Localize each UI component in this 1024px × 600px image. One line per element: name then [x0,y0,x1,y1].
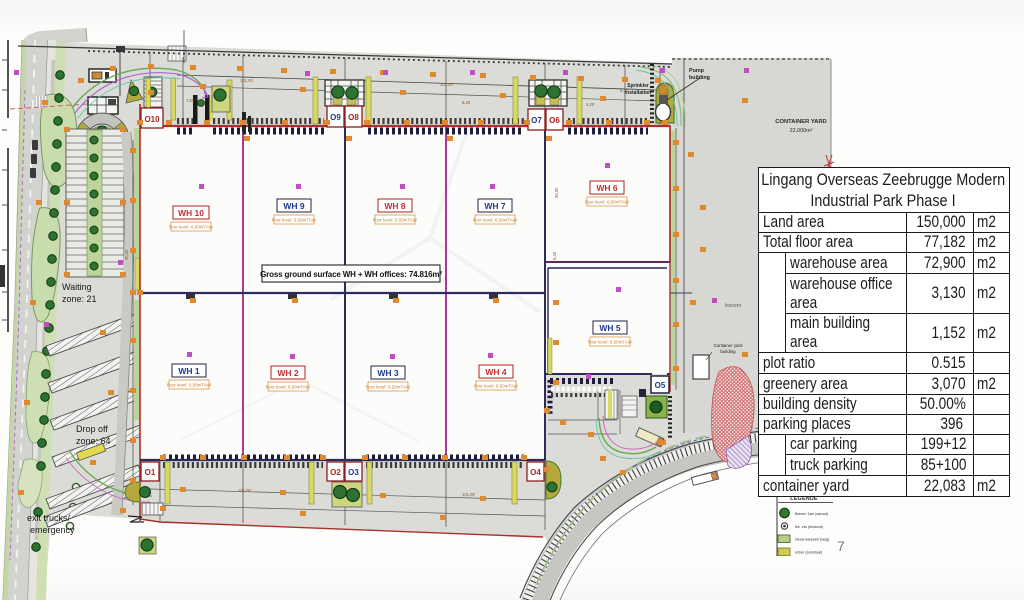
svg-text:WH 2: WH 2 [277,368,299,378]
svg-text:O2: O2 [330,468,341,477]
svg-text:6,40: 6,40 [552,251,557,260]
svg-text:O9: O9 [330,113,341,122]
svg-text:O4: O4 [530,468,541,477]
svg-text:WH 6: WH 6 [596,183,618,193]
svg-text:7,50: 7,50 [186,98,195,103]
svg-text:loricero: loricero [725,303,742,309]
svg-text:Bomen 1ste (aanzet): Bomen 1ste (aanzet) [795,512,828,516]
svg-text:Container yard: Container yard [714,343,743,348]
svg-text:exit trucks/: exit trucks/ [27,513,71,523]
svg-text:101,00: 101,00 [238,488,251,493]
svg-text:installation: installation [625,90,651,96]
svg-text:O7: O7 [531,116,542,125]
svg-text:emergency: emergency [30,525,75,535]
svg-text:building: building [720,349,736,354]
svg-text:Waiting: Waiting [62,282,92,292]
svg-text:WH 10: WH 10 [178,208,204,218]
svg-text:O10: O10 [144,115,160,124]
svg-text:WH 8: WH 8 [384,201,406,211]
svg-text:7: 7 [837,538,845,554]
svg-text:Drop off: Drop off [76,424,108,434]
svg-text:101,00: 101,00 [462,492,475,497]
svg-text:floor level: 6,50mTAW: floor level: 6,50mTAW [473,218,518,223]
svg-text:floor level: 6,50mTAW: floor level: 6,50mTAW [373,218,418,223]
svg-text:36,00: 36,00 [124,249,129,260]
svg-text:4,20: 4,20 [586,102,595,107]
svg-text:tek. vlw (bestond): tek. vlw (bestond) [795,525,823,529]
svg-text:WH 3: WH 3 [377,368,399,378]
svg-text:O3: O3 [348,468,359,477]
svg-text:floor level: 6,50mTAW: floor level: 6,50mTAW [169,225,214,230]
svg-text:floor level: 6,50mTAW: floor level: 6,50mTAW [585,200,630,205]
svg-text:6,20: 6,20 [620,88,629,93]
svg-text:CONTAINER YARD: CONTAINER YARD [775,119,826,125]
svg-text:6,20: 6,20 [462,100,471,105]
svg-text:floor level: 6,50mTAW: floor level: 6,50mTAW [366,385,411,390]
svg-text:Sprinkler: Sprinkler [627,83,649,89]
svg-text:Gross ground surface WH + WH o: Gross ground surface WH + WH offices: 74… [260,270,442,279]
svg-text:101,00: 101,00 [440,82,453,87]
svg-text:floor level: 6,50mTAW: floor level: 6,50mTAW [588,340,633,345]
svg-text:floor level: 6,50mTAW: floor level: 6,50mTAW [474,384,519,389]
svg-text:22,000m²: 22,000m² [790,128,813,134]
svg-text:building: building [689,75,710,81]
svg-text:WH 1: WH 1 [178,366,200,376]
svg-text:O5: O5 [655,381,666,390]
svg-text:WH 7: WH 7 [484,201,506,211]
svg-text:101,00: 101,00 [240,78,253,83]
svg-text:O6: O6 [549,116,560,125]
svg-text:floor level: 6,50mTAW: floor level: 6,50mTAW [272,218,317,223]
svg-text:O1: O1 [145,468,156,477]
svg-text:WH 9: WH 9 [283,201,305,211]
svg-text:WH 5: WH 5 [599,323,621,333]
svg-text:nieuw aanplant (laag): nieuw aanplant (laag) [795,538,829,542]
svg-text:WH 4: WH 4 [485,367,507,377]
svg-text:Pump: Pump [689,68,705,74]
svg-text:floor level: 6,50mTAW: floor level: 6,50mTAW [167,383,212,388]
svg-text:36,00: 36,00 [554,187,559,198]
svg-text:zone: 64: zone: 64 [76,436,111,446]
svg-text:O8: O8 [348,113,359,122]
svg-text:floor level: 6,50mTAW: floor level: 6,50mTAW [266,385,311,390]
svg-text:urban (substraat): urban (substraat) [795,551,822,555]
svg-text:zone: 21: zone: 21 [62,294,97,304]
